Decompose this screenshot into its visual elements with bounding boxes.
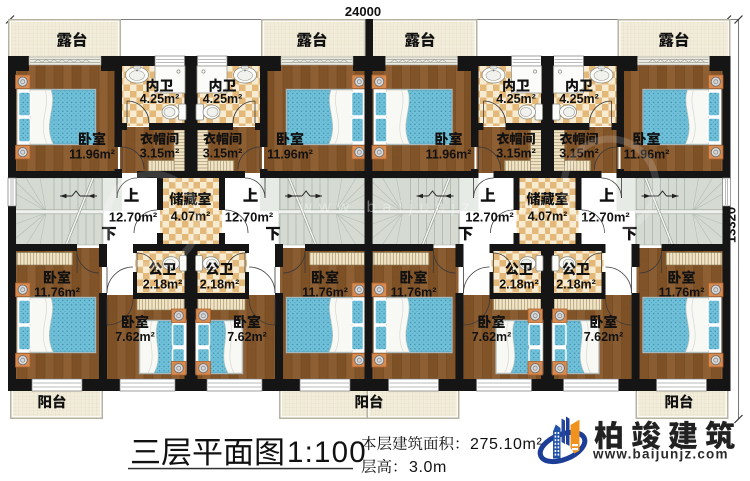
svg-text:24000: 24000 bbox=[345, 4, 381, 19]
svg-text:4.25m²: 4.25m² bbox=[203, 92, 243, 106]
svg-text:2.18m²: 2.18m² bbox=[556, 278, 596, 292]
svg-text:www.baijunjz.com: www.baijunjz.com bbox=[592, 447, 729, 462]
svg-text:11.96m²: 11.96m² bbox=[267, 148, 313, 162]
svg-text:4.07m²: 4.07m² bbox=[171, 210, 211, 224]
svg-text:11.96m²: 11.96m² bbox=[426, 148, 472, 162]
svg-text:7.62m²: 7.62m² bbox=[472, 330, 512, 344]
svg-text:7.62m²: 7.62m² bbox=[115, 330, 155, 344]
svg-text:1:100: 1:100 bbox=[287, 436, 367, 469]
svg-text:11.76m²: 11.76m² bbox=[391, 286, 437, 300]
svg-text:3.0m: 3.0m bbox=[409, 459, 447, 476]
svg-text:275.10m²: 275.10m² bbox=[470, 436, 542, 453]
svg-text:3.15m²: 3.15m² bbox=[203, 147, 243, 161]
svg-text:7.62m²: 7.62m² bbox=[227, 330, 267, 344]
svg-text:3.15m²: 3.15m² bbox=[140, 147, 180, 161]
svg-text:4.25m²: 4.25m² bbox=[496, 92, 536, 106]
svg-text:2.18m²: 2.18m² bbox=[143, 278, 183, 292]
svg-text:12.70m²: 12.70m² bbox=[109, 210, 158, 225]
svg-text:4.25m²: 4.25m² bbox=[559, 92, 599, 106]
svg-text:3.15m²: 3.15m² bbox=[496, 147, 536, 161]
svg-text:7.62m²: 7.62m² bbox=[584, 330, 624, 344]
svg-text:11.96m²: 11.96m² bbox=[69, 148, 115, 162]
svg-text:11.76m²: 11.76m² bbox=[659, 286, 705, 300]
svg-text:11.76m²: 11.76m² bbox=[34, 286, 80, 300]
svg-text:11.76m²: 11.76m² bbox=[302, 286, 348, 300]
svg-text:2.18m²: 2.18m² bbox=[499, 278, 539, 292]
svg-text:12.70m²: 12.70m² bbox=[225, 210, 274, 225]
svg-text:2.18m²: 2.18m² bbox=[200, 278, 240, 292]
svg-text:4.25m²: 4.25m² bbox=[140, 92, 180, 106]
svg-text:www.baijunjz.com: www.baijunjz.com bbox=[299, 199, 539, 216]
